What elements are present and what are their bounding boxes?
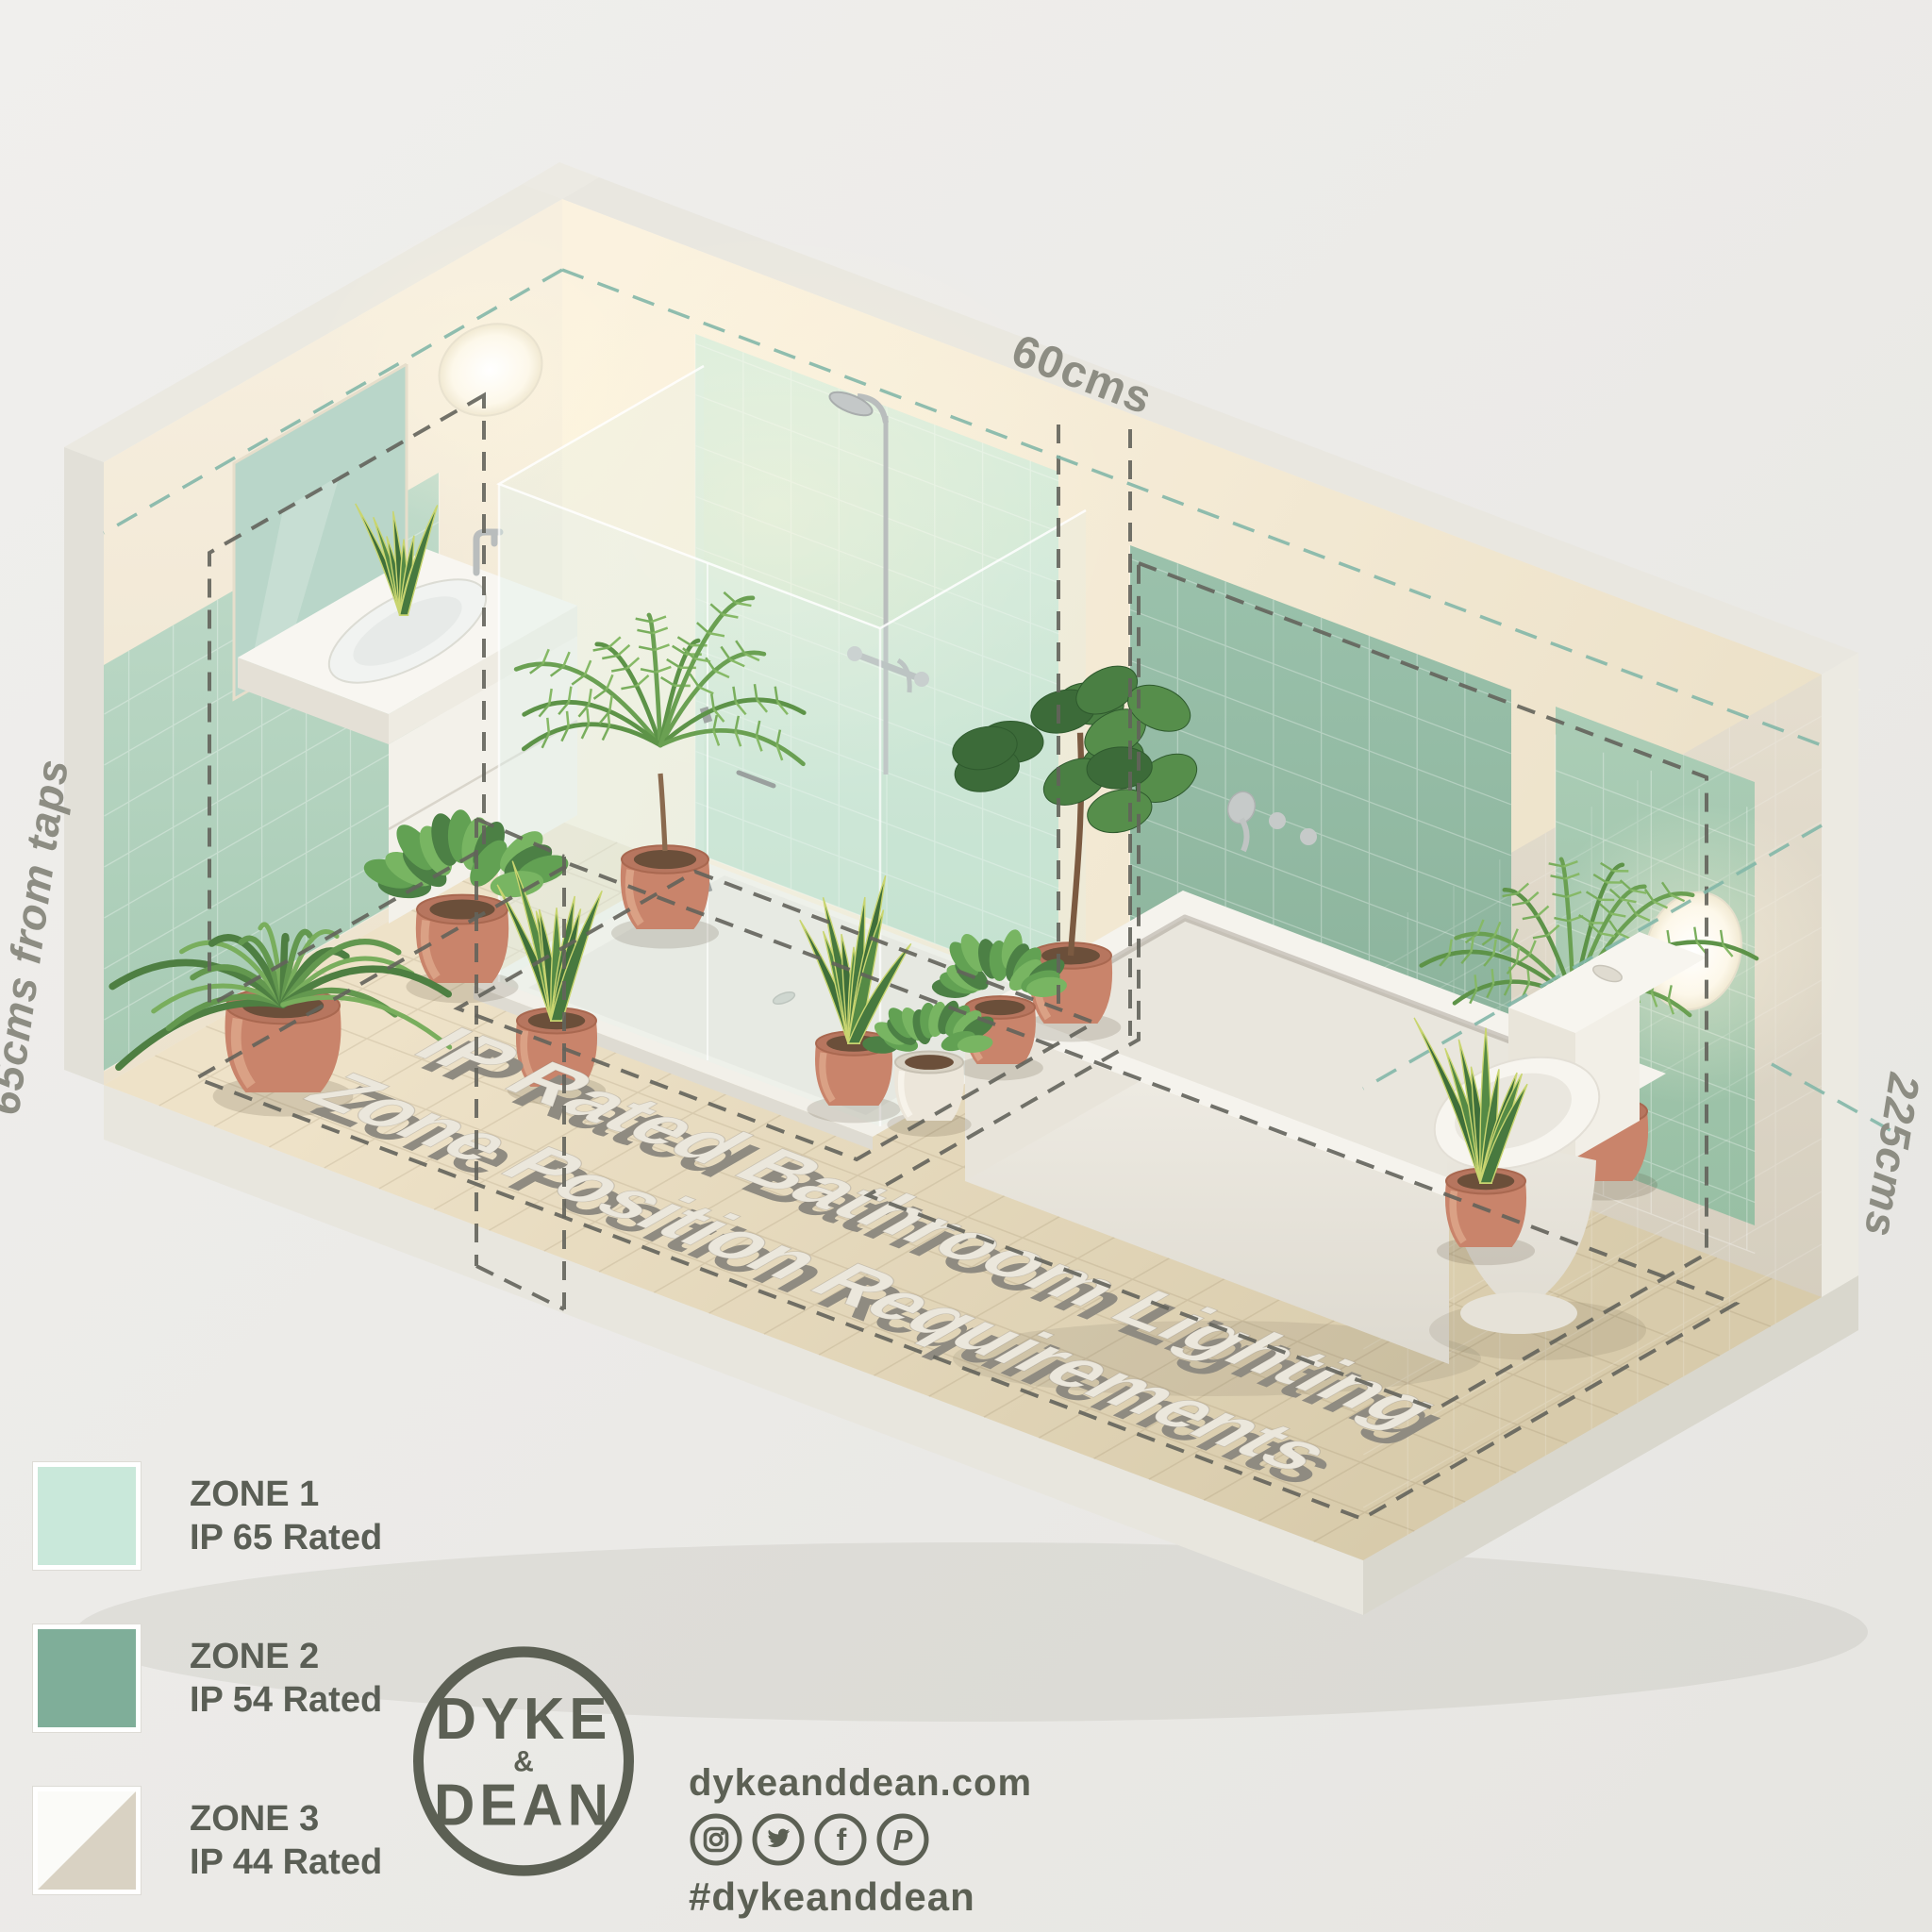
pot-soil [634,850,696,869]
instagram-icon [689,1812,743,1867]
branding-block: DYKE & DEAN dykeanddean.com f [413,1651,1032,1920]
hashtag-label: #dykeanddean [689,1874,1032,1920]
palm-leaflet [547,718,549,734]
pot-soil [429,899,494,919]
palm-leaflet [1475,974,1477,990]
zone1-swatch-color [38,1467,136,1565]
bath-tap-hot [1269,812,1286,829]
palm-leaflet [567,711,569,727]
zone2-swatch [33,1624,141,1732]
social-icons-row: f P [689,1812,1032,1867]
website-url: dykeanddean.com [689,1762,1032,1805]
zone-legend: ZONE 1 IP 65 Rated ZONE 2 IP 54 Rated ZO… [33,1462,382,1932]
zone1-label: ZONE 1 [190,1473,382,1516]
pot-soil [974,1000,1024,1015]
pot-soil [905,1055,954,1070]
twitter-icon-bird [767,1829,790,1847]
zone1-swatch [33,1462,141,1570]
toilet-base [1460,1292,1577,1334]
twitter-icon [751,1812,806,1867]
instagram-icon-ring [692,1816,740,1863]
zone1-rating: IP 65 Rated [190,1516,382,1559]
zone2-rating: IP 54 Rated [190,1678,382,1722]
zone2-swatch-color [38,1629,136,1727]
logo-word-dyke: DYKE [436,1690,612,1746]
instagram-icon-lens [710,1834,721,1844]
logo-word-dean: DEAN [434,1776,613,1832]
zone3-rating: IP 44 Rated [190,1840,382,1884]
pinterest-icon: P [875,1812,930,1867]
zone3-swatch [33,1787,141,1894]
facebook-icon-glyph: f [837,1823,847,1857]
legend-item-zone3: ZONE 3 IP 44 Rated [33,1787,382,1894]
bath-tap-cold [1300,828,1317,845]
dyke-and-dean-logo: DYKE & DEAN [413,1646,634,1875]
infographic-canvas: IP Rated Bathroom LightingIP Rated Bathr… [0,0,1932,1932]
legend-item-zone2: ZONE 2 IP 54 Rated [33,1624,382,1732]
palm-leaflet [1492,969,1494,984]
instagram-icon-dot [721,1831,724,1835]
legend-item-zone1: ZONE 1 IP 65 Rated [33,1462,382,1570]
facebook-icon: f [813,1812,868,1867]
zone3-label: ZONE 3 [190,1797,382,1840]
logo-ampersand: & [513,1748,534,1774]
zone2-label: ZONE 2 [190,1635,382,1678]
palm-leaflet [587,708,589,724]
pinterest-icon-glyph: P [893,1824,913,1857]
